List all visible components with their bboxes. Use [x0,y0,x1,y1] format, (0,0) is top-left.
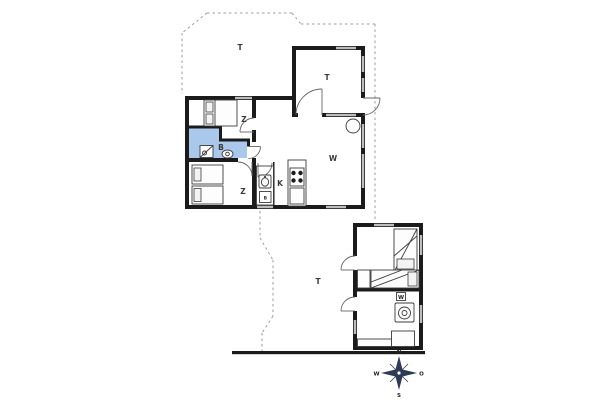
window [362,154,364,188]
wood-stove-icon [346,119,360,133]
kitchen-sink-icon [259,175,271,188]
window [354,320,356,334]
upper-terrace-label: T [237,43,243,52]
dresser-icon [358,270,371,288]
window [420,305,422,323]
bathroom-label: B [218,143,224,152]
kitchen-label: K [277,179,284,188]
window [362,124,364,148]
walkway-outline [260,211,273,351]
annex-door-arc [341,297,355,311]
compass-south-label: S [397,393,401,399]
bedroom1-label: Z [241,115,247,124]
utility-room: W [358,293,415,347]
annex-door-arc [341,256,355,270]
single-bed-icon [192,165,223,184]
conservatory-label: T [324,73,330,82]
conservatory-exit-door-arc [363,98,380,115]
compass-west-label: W [373,372,379,378]
window [362,78,364,92]
lower-terrace-label: T [315,277,321,286]
floor-plan-page: T T T [0,0,600,400]
compass-rose: N O S W [373,350,424,400]
bedroom2-label: Z [240,187,246,196]
annex-utility-label: W [398,295,404,301]
window [362,56,364,72]
window [326,206,346,208]
compass-east-label: O [419,372,424,378]
conservatory-door-arc [296,89,322,115]
counter-icon [358,339,392,347]
shower-icon [200,146,213,158]
living-room-label: W [329,154,338,163]
window [374,224,394,226]
window [326,114,356,116]
counter-icon [392,331,415,347]
bathroom-door-arc [249,147,261,159]
bedroom2-door-arc [238,162,252,176]
stove-island-icon [288,160,306,206]
window [420,235,422,255]
counter-appliance-label: B [264,196,268,202]
compass-north-label: N [397,350,402,356]
bunk-bed-icon [371,270,419,288]
double-bed-icon [204,100,237,126]
entrance-door [257,206,273,208]
single-bed-icon [192,186,223,204]
window [336,47,356,49]
kitchen-counter: B [257,166,274,205]
floor-plan-drawing: T T T [0,0,600,400]
bunk-bed-icon [394,229,417,272]
washing-machine-icon [395,303,414,322]
